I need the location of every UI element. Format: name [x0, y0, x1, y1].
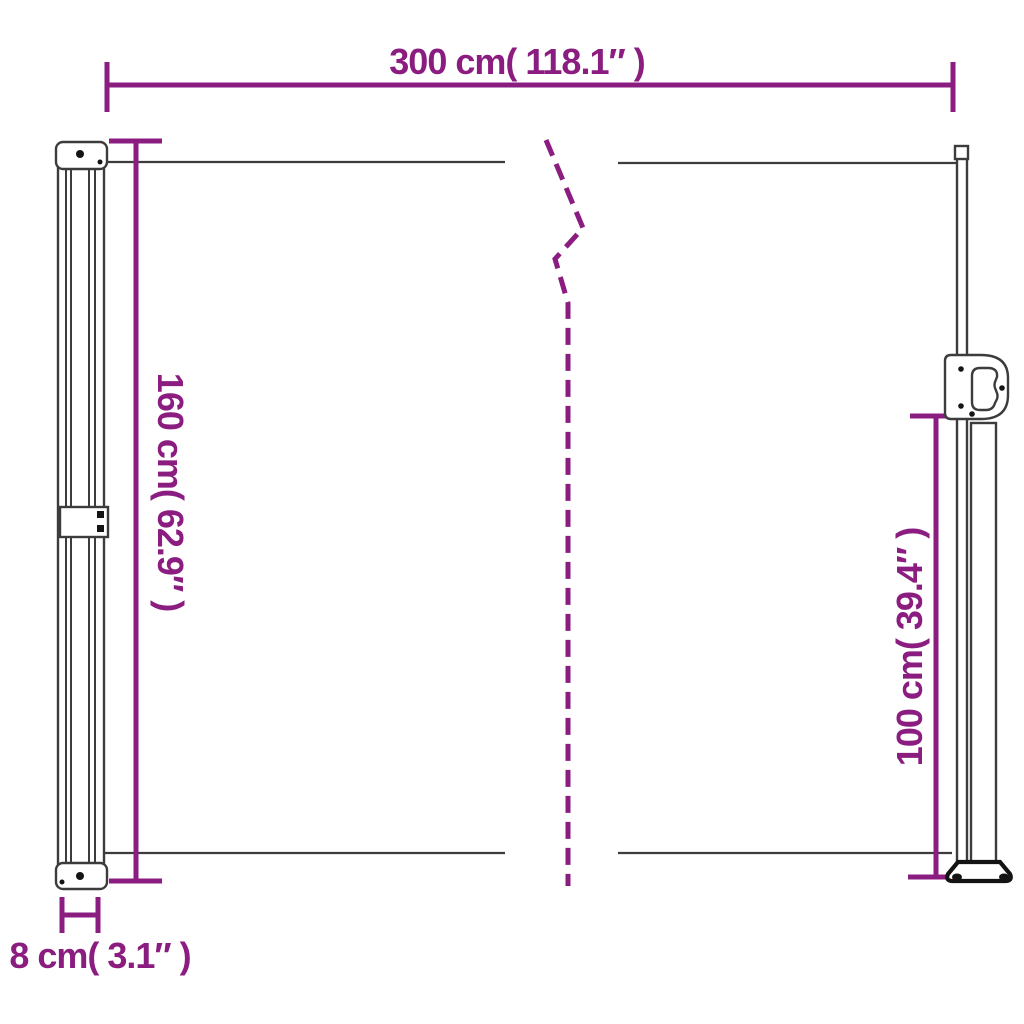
screw-icon	[60, 880, 65, 885]
pole-top-cap	[955, 146, 968, 159]
support-pole	[945, 146, 1011, 881]
screw-icon	[76, 872, 84, 880]
bracket-bolt-icon	[97, 525, 104, 532]
cassette-post	[56, 142, 108, 889]
fabric-break-line	[546, 140, 583, 886]
awning-dimension-diagram: 300 cm( 118.1″ ) 160 cm( 62.9″ ) 100 cm(…	[0, 0, 1024, 1024]
awning-fabric	[104, 162, 956, 853]
screw-icon	[958, 403, 964, 409]
foot-pad-icon	[999, 874, 1009, 881]
diagram-canvas: 300 cm( 118.1″ ) 160 cm( 62.9″ ) 100 cm(…	[0, 0, 1024, 1024]
foot-pad-icon	[952, 874, 962, 881]
screw-icon	[76, 150, 84, 158]
depth-dimension-label: 8 cm( 3.1″ )	[9, 935, 190, 976]
width-dimension-label: 300 cm( 118.1″ )	[389, 41, 644, 82]
screw-icon	[98, 160, 103, 165]
cassette-height-dimension: 160 cm( 62.9″ )	[109, 141, 191, 881]
depth-dimension: 8 cm( 3.1″ )	[9, 897, 190, 976]
screw-icon	[999, 385, 1005, 391]
pole-outer-tube	[971, 423, 996, 865]
bracket-bolt-icon	[97, 511, 104, 518]
screw-icon	[969, 411, 975, 417]
cassette-height-label: 160 cm( 62.9″ )	[150, 373, 191, 611]
pole-height-label: 100 cm( 39.4″ )	[889, 528, 930, 766]
screw-icon	[958, 366, 964, 372]
handle-grip-hole	[972, 368, 998, 410]
pole-shaft	[957, 158, 967, 865]
pole-height-dimension: 100 cm( 39.4″ )	[889, 416, 962, 877]
width-dimension: 300 cm( 118.1″ )	[107, 41, 953, 112]
